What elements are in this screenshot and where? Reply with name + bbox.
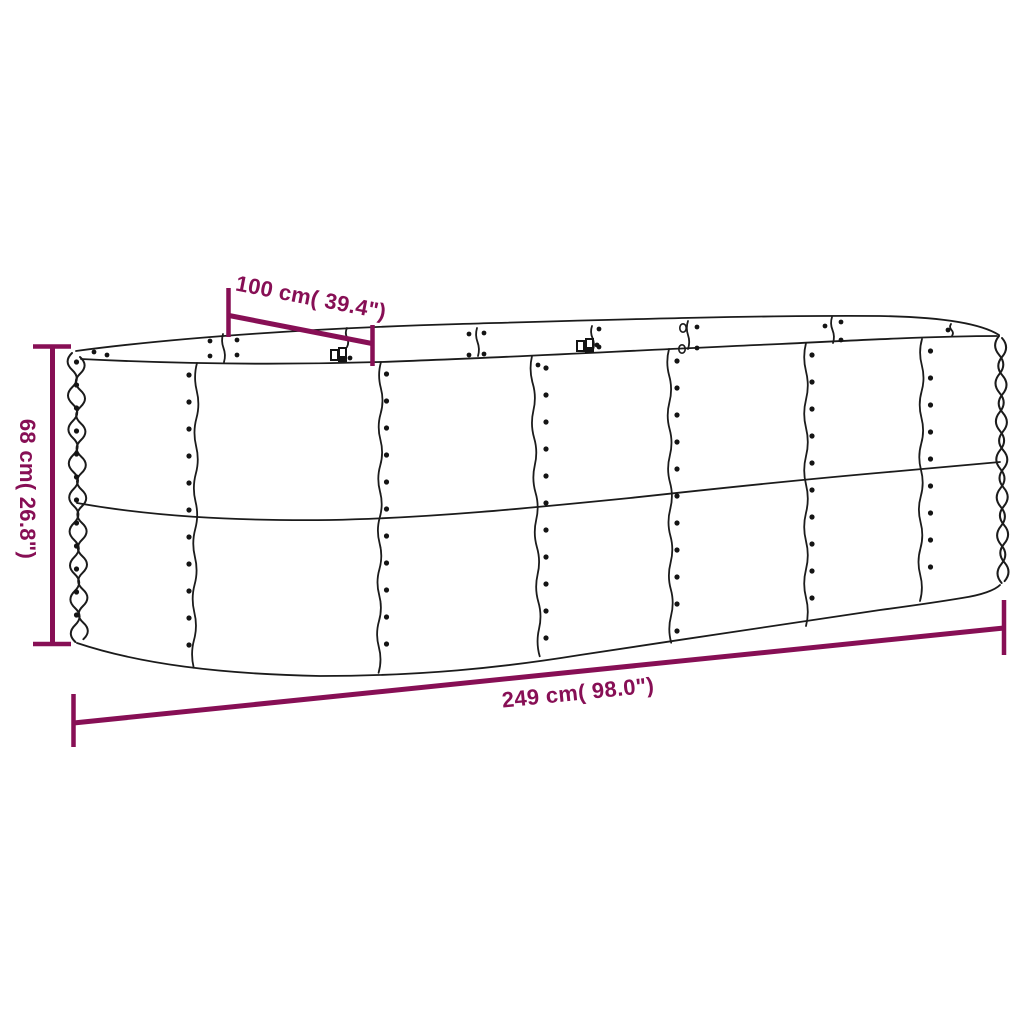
rivet-dot bbox=[74, 589, 79, 594]
height-dim-label: 68 cm( 26.8") bbox=[14, 419, 40, 559]
rim-seam bbox=[222, 334, 225, 362]
rim-hole bbox=[680, 324, 686, 332]
rivet-dot bbox=[928, 348, 933, 353]
rivet-dot bbox=[482, 352, 487, 357]
rivet-dot bbox=[208, 339, 213, 344]
rivet-dot bbox=[809, 595, 814, 600]
rivet-dot bbox=[928, 564, 933, 569]
rivet-dot bbox=[809, 541, 814, 546]
rivet-dot bbox=[839, 320, 844, 325]
panel-seam bbox=[667, 349, 672, 643]
rivet-dot bbox=[543, 419, 548, 424]
planter-top-outer-edge bbox=[76, 316, 999, 351]
rivet-dot bbox=[674, 385, 679, 390]
rivet-dot bbox=[674, 493, 679, 498]
rivet-dot bbox=[809, 568, 814, 573]
rivet-dot bbox=[674, 520, 679, 525]
rivet-dot bbox=[186, 642, 191, 647]
rivet-dot bbox=[186, 561, 191, 566]
rim-clip-icon bbox=[586, 348, 593, 352]
rivet-dot bbox=[384, 614, 389, 619]
rivet-dot bbox=[384, 587, 389, 592]
rivet-dot bbox=[928, 537, 933, 542]
rivet-dot bbox=[674, 412, 679, 417]
rim-seam bbox=[950, 324, 953, 336]
rivet-dot bbox=[186, 615, 191, 620]
rivet-dot bbox=[928, 375, 933, 380]
rim-seam bbox=[831, 317, 834, 343]
corrugated-end-edges bbox=[68, 336, 1009, 642]
rivet-dot bbox=[928, 456, 933, 461]
rivet-dot bbox=[384, 452, 389, 457]
rivet-dot bbox=[384, 425, 389, 430]
rivet-dot bbox=[928, 483, 933, 488]
rivet-dot bbox=[186, 588, 191, 593]
rivet-dot bbox=[543, 392, 548, 397]
rivet-dot bbox=[543, 446, 548, 451]
rivet-dot bbox=[186, 426, 191, 431]
rivet-dot bbox=[809, 406, 814, 411]
rivet-dot bbox=[384, 560, 389, 565]
width-dim-line bbox=[229, 316, 372, 344]
rivet-dot bbox=[928, 429, 933, 434]
rivet-dot bbox=[74, 451, 79, 456]
rivet-dot bbox=[695, 325, 700, 330]
rivet-dot bbox=[674, 628, 679, 633]
rivet-dot bbox=[384, 479, 389, 484]
rivet-dot bbox=[543, 635, 548, 640]
rivet-dot bbox=[809, 514, 814, 519]
rivet-dot bbox=[536, 363, 541, 368]
rivet-dot bbox=[809, 379, 814, 384]
rim-seam bbox=[476, 328, 479, 356]
rivet-dot bbox=[74, 405, 79, 410]
rivet-dot bbox=[74, 359, 79, 364]
rivet-dot bbox=[809, 487, 814, 492]
rivet-dot bbox=[674, 547, 679, 552]
rivet-dot bbox=[186, 480, 191, 485]
rivet-dot bbox=[74, 474, 79, 479]
rivet-dot bbox=[186, 534, 191, 539]
rivet-dot bbox=[74, 520, 79, 525]
rivet-dot bbox=[809, 352, 814, 357]
rivet-dots bbox=[74, 320, 950, 648]
rivet-dot bbox=[482, 331, 487, 336]
rivet-dot bbox=[543, 608, 548, 613]
rivet-dot bbox=[208, 354, 213, 359]
rivet-dot bbox=[348, 356, 353, 361]
rim-clip-icon bbox=[577, 341, 584, 351]
rivet-dot bbox=[74, 566, 79, 571]
rivet-dot bbox=[674, 601, 679, 606]
rivet-dot bbox=[92, 350, 97, 355]
rivet-dot bbox=[74, 428, 79, 433]
rivet-dot bbox=[823, 324, 828, 329]
rivet-dot bbox=[809, 460, 814, 465]
rivet-dot bbox=[928, 510, 933, 515]
panel-seam bbox=[192, 363, 198, 668]
rivet-dot bbox=[467, 353, 472, 358]
rim-clip-icon bbox=[339, 357, 346, 361]
rivet-dot bbox=[543, 554, 548, 559]
panel-seam bbox=[804, 343, 808, 626]
rivet-dot bbox=[595, 343, 600, 348]
rivet-dot bbox=[543, 527, 548, 532]
rivet-dot bbox=[74, 612, 79, 617]
rivet-dot bbox=[674, 439, 679, 444]
planter-outline-group bbox=[68, 316, 1009, 676]
rivet-dot bbox=[186, 507, 191, 512]
rivet-dot bbox=[674, 466, 679, 471]
rivet-dot bbox=[384, 506, 389, 511]
rivet-dot bbox=[467, 332, 472, 337]
rivet-dot bbox=[105, 353, 110, 358]
rivet-dot bbox=[695, 346, 700, 351]
planter-rim-inner-edge bbox=[81, 336, 997, 364]
rim-seam bbox=[687, 321, 689, 349]
rivet-dot bbox=[384, 371, 389, 376]
rivet-dot bbox=[809, 433, 814, 438]
rivet-dot bbox=[186, 372, 191, 377]
rivet-dot bbox=[74, 382, 79, 387]
rivet-dot bbox=[384, 398, 389, 403]
rivet-dot bbox=[839, 338, 844, 343]
rivet-dot bbox=[597, 327, 602, 332]
rivet-dot bbox=[384, 533, 389, 538]
rivet-dot bbox=[235, 353, 240, 358]
product-dimension-diagram: 100 cm( 39.4") 68 cm( 26.8") 249 cm( 98.… bbox=[0, 0, 1024, 1024]
planter-line-drawing bbox=[0, 0, 1024, 1024]
rivet-dot bbox=[384, 641, 389, 646]
rivet-dot bbox=[674, 358, 679, 363]
rivet-dot bbox=[674, 574, 679, 579]
rivet-dot bbox=[235, 338, 240, 343]
rim-clip-icon bbox=[331, 350, 338, 360]
rivet-dot bbox=[186, 399, 191, 404]
rivet-dot bbox=[186, 453, 191, 458]
rivet-dot bbox=[543, 473, 548, 478]
rivet-dot bbox=[946, 328, 951, 333]
left-corrugated-edge bbox=[68, 353, 80, 642]
rivet-dot bbox=[74, 497, 79, 502]
rivet-dot bbox=[543, 581, 548, 586]
rivet-dot bbox=[74, 543, 79, 548]
rivet-dot bbox=[928, 402, 933, 407]
planter-mid-seam bbox=[77, 462, 1000, 520]
rivet-dot bbox=[543, 500, 548, 505]
rivet-dot bbox=[543, 365, 548, 370]
